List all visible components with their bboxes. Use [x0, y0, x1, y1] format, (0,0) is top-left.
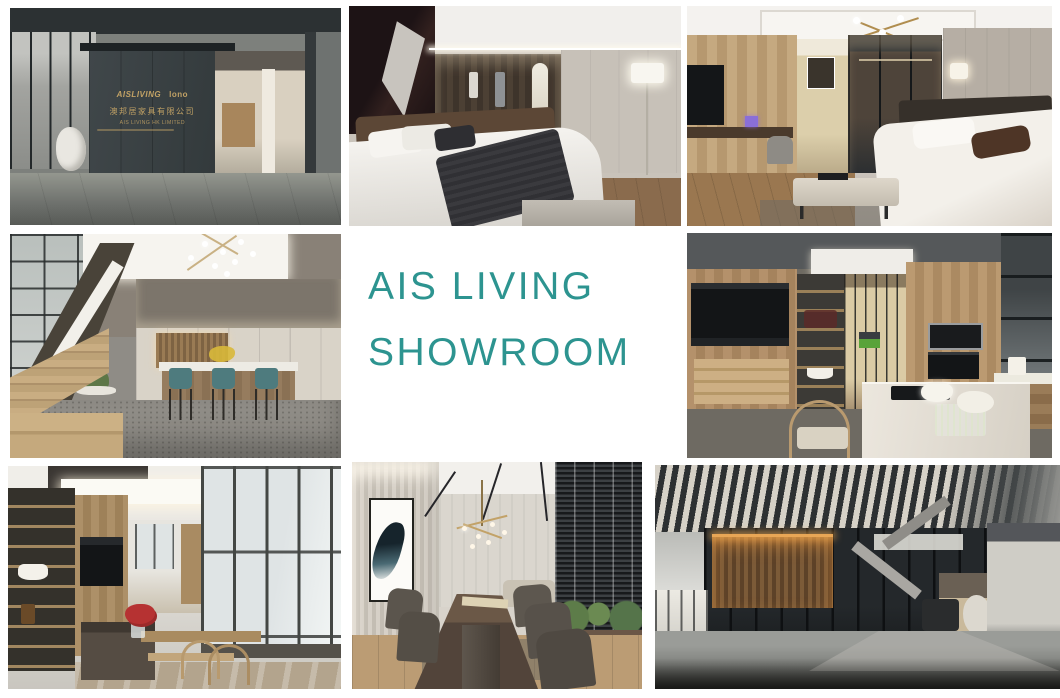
- sign-smallprint-bar: [97, 129, 174, 131]
- books: [818, 173, 847, 180]
- hanging-garment: [469, 72, 479, 98]
- photo-bedroom-light: [687, 6, 1052, 226]
- closet-rail: [859, 59, 932, 61]
- sign-company-cn: 澳邦居家具有限公司: [97, 106, 208, 117]
- stool-legs: [212, 389, 235, 420]
- chair-cushion: [797, 427, 848, 450]
- stair-platform: [10, 413, 123, 458]
- sign-brand-row: AISLIVINGlono: [97, 90, 208, 99]
- rock-sculpture: [56, 127, 86, 170]
- storefront-right-frame: [305, 32, 341, 173]
- tv-green-screen: [859, 332, 881, 348]
- floor-lamp-shade: [631, 63, 664, 83]
- entrance-canopy: [80, 43, 236, 52]
- photo-facade-atrium: [655, 465, 1060, 689]
- white-pot: [18, 564, 48, 580]
- built-in-ovens: [80, 537, 123, 586]
- window: [1001, 233, 1052, 373]
- photo-dining-room: [352, 462, 642, 689]
- stool-legs: [255, 389, 278, 420]
- teal-bar-stool: [169, 368, 192, 388]
- glass-vase: [131, 622, 144, 638]
- dark-shelving: [8, 488, 75, 671]
- sign-brand-right: lono: [169, 90, 188, 99]
- teal-bar-stool: [255, 368, 278, 388]
- headline-line1: AIS LIVING: [368, 254, 668, 320]
- artwork-shape: [382, 21, 425, 117]
- back-wall: [136, 279, 341, 328]
- white-bowl: [807, 368, 833, 379]
- white-flowers: [957, 391, 994, 414]
- bed-bench: [793, 178, 899, 207]
- sign-company-en: AIS LIVING HK LIMITED: [105, 121, 199, 126]
- photo-kitchen-wood: [687, 233, 1052, 458]
- vestibule-artwork: [807, 57, 835, 90]
- white-flowers: [921, 382, 954, 402]
- back-window: [135, 524, 175, 569]
- hanging-garment: [495, 72, 505, 107]
- jar: [1008, 357, 1026, 375]
- interior-column: [262, 69, 275, 173]
- wall-sconce: [950, 63, 968, 78]
- photo-storefront: AISLIVINGlono 澳邦居家具有限公司 AIS LIVING HK LI…: [10, 8, 341, 225]
- back-cabinet: [181, 524, 201, 604]
- branch-chandelier-blooms: [202, 241, 208, 247]
- photo-galley-kitchen: [8, 466, 341, 689]
- chandelier-bulbs: [462, 526, 467, 531]
- desk-chair: [767, 136, 793, 165]
- bottle: [21, 604, 34, 624]
- headline-line2: SHOWROOM: [368, 320, 668, 386]
- photo-stair-lounge: [10, 234, 341, 458]
- storefront-sign-text: AISLIVINGlono 澳邦居家具有限公司 AIS LIVING HK LI…: [97, 90, 208, 126]
- table-plinth: [462, 625, 500, 689]
- headline: AIS LIVING SHOWROOM: [368, 254, 668, 386]
- open-drawers: [694, 359, 789, 404]
- wishbone-chair: [208, 644, 251, 685]
- photo-bedroom-dark: [349, 6, 681, 226]
- left-wall: [655, 532, 704, 595]
- wine-bottles: [804, 310, 837, 328]
- foot-table: [522, 200, 635, 226]
- slat-wall-glow: [712, 534, 834, 537]
- interior-furniture: [922, 599, 958, 630]
- storefront-sign-panel: AISLIVINGlono 澳邦居家具有限公司 AIS LIVING HK LI…: [89, 51, 215, 173]
- storefront-floor: [10, 173, 341, 225]
- built-in-ovens: [691, 283, 790, 346]
- laptop: [745, 116, 758, 127]
- vignette: [655, 658, 1060, 689]
- showroom-collage: AISLIVINGlono 澳邦居家具有限公司 AIS LIVING HK LI…: [0, 0, 1060, 698]
- chandelier-stem: [481, 480, 483, 525]
- dining-chair: [534, 627, 596, 689]
- glass-balustrade: [655, 590, 708, 630]
- interior-cabinet: [222, 103, 255, 146]
- ceiling-panel: [811, 249, 913, 274]
- window-wall: [201, 466, 341, 658]
- floor-lamp-pole: [646, 79, 648, 176]
- yellow-flowers: [209, 346, 235, 362]
- sign-brand-left: AISLIVING: [117, 90, 162, 99]
- stool-legs: [169, 389, 192, 420]
- chandelier-globes: [853, 17, 860, 24]
- wall-oven: [928, 352, 979, 379]
- tv-screen: [687, 65, 724, 124]
- microwave: [928, 323, 983, 350]
- wood-slat-wall: [712, 537, 834, 609]
- open-shelving: [797, 274, 844, 409]
- dining-chair: [397, 610, 441, 663]
- teal-bar-stool: [212, 368, 235, 388]
- right-corridor: [987, 523, 1060, 639]
- bench-legs: [800, 206, 888, 219]
